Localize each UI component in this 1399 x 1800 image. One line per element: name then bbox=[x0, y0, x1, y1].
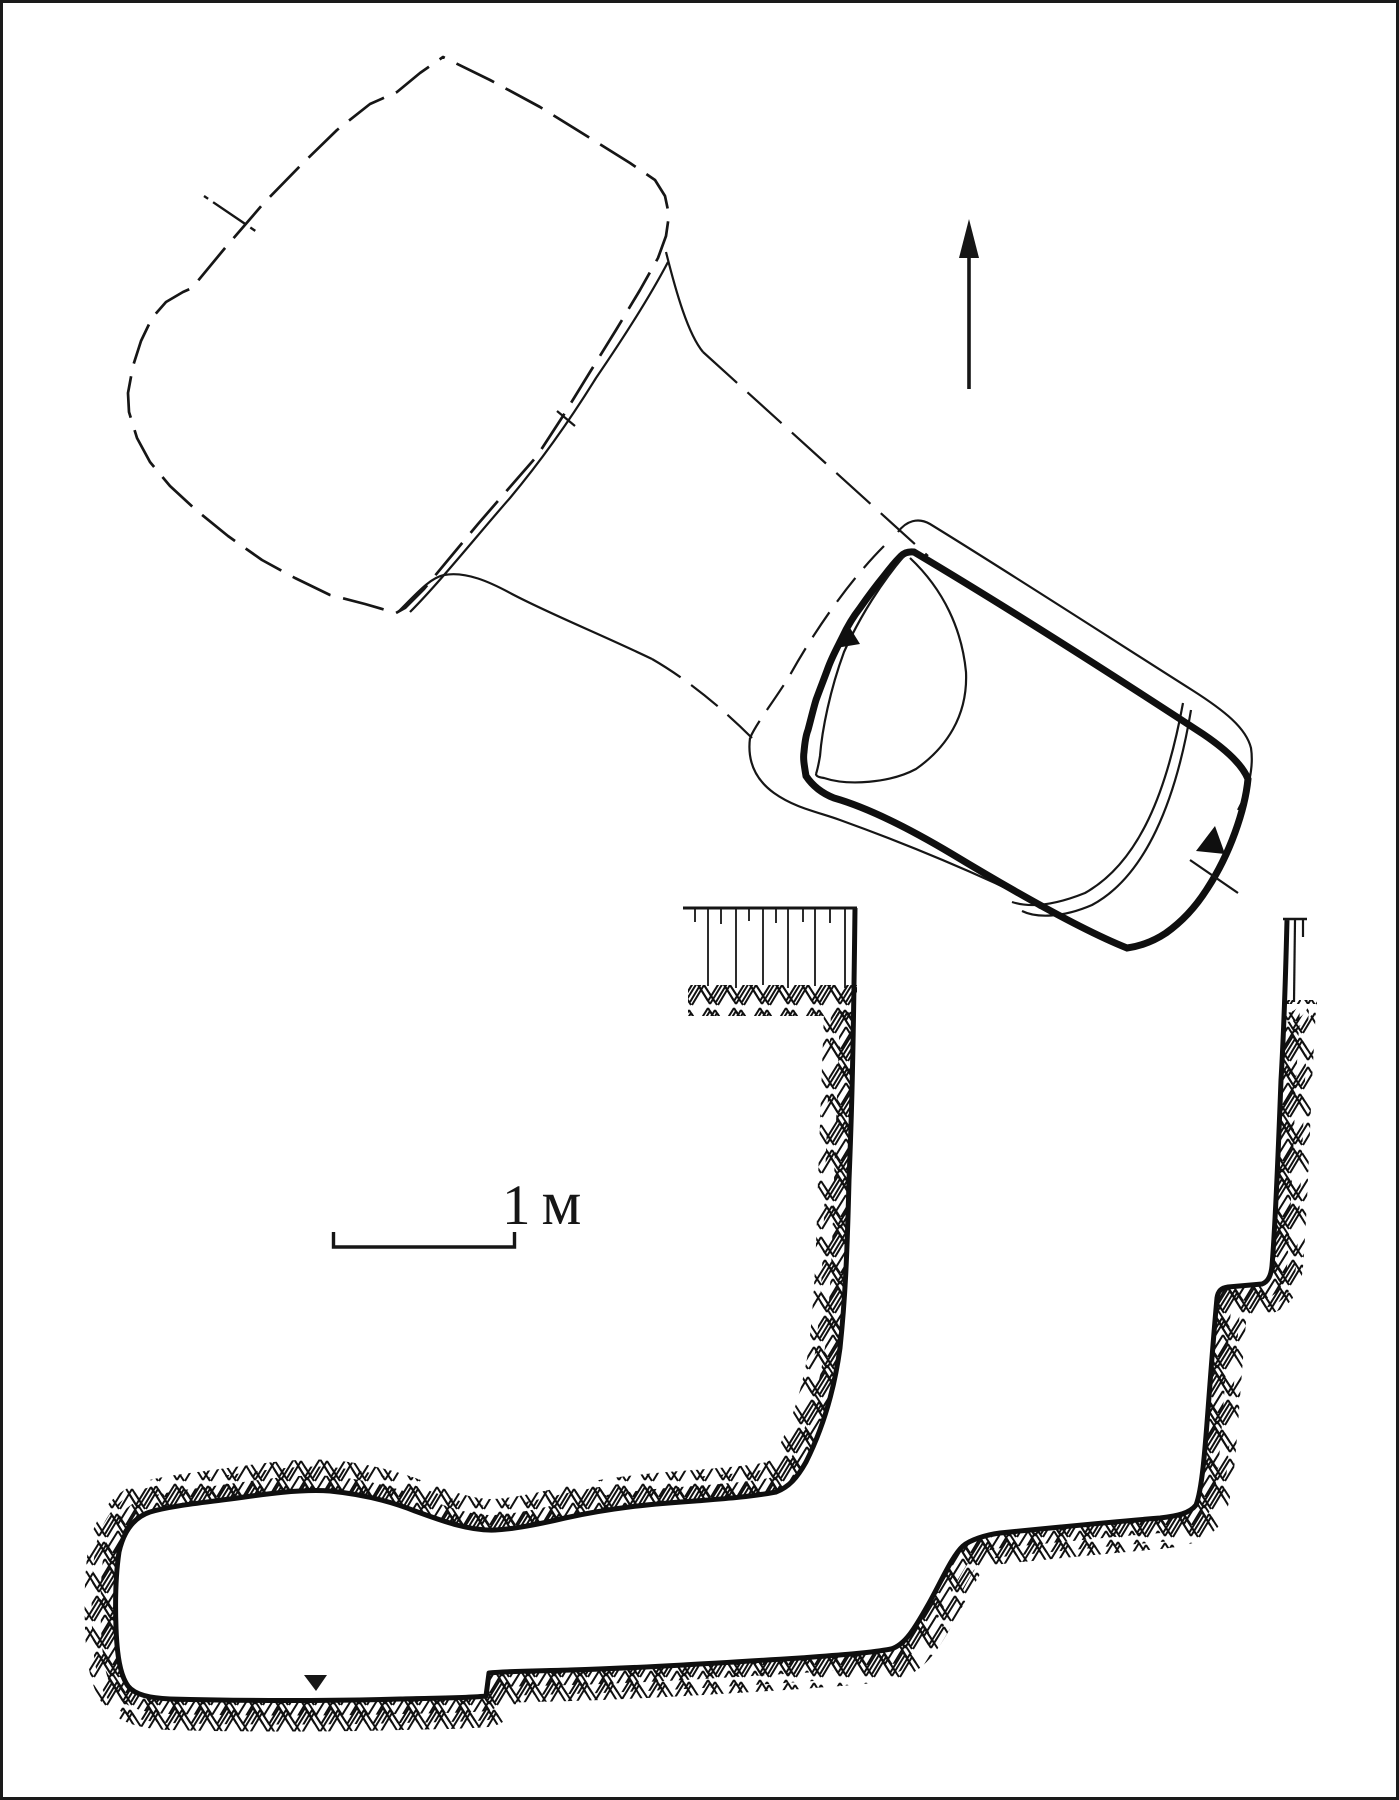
svg-text:1м: 1м bbox=[502, 1168, 581, 1238]
